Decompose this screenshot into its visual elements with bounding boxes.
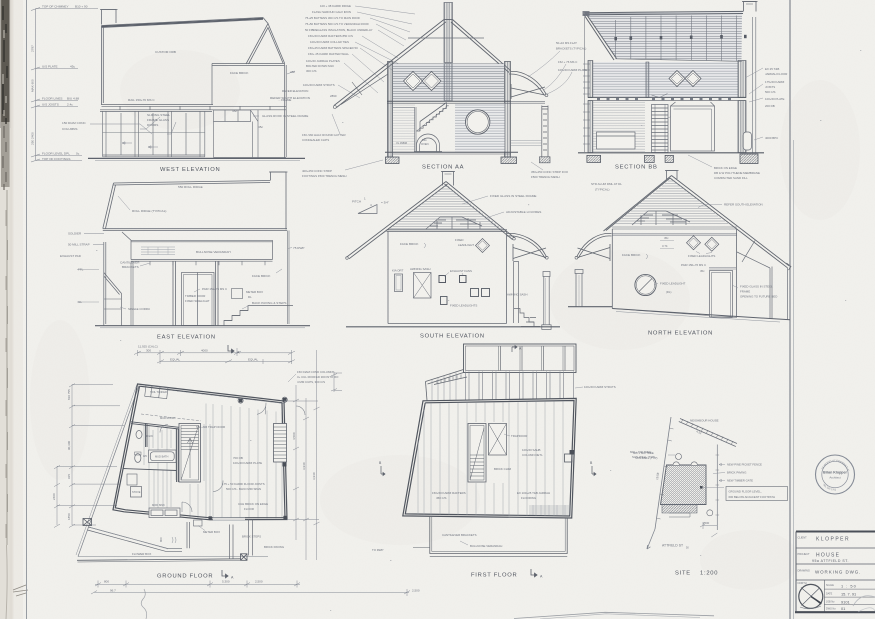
svg-text:CANTILEVER: CANTILEVER (120, 261, 140, 265)
svg-text:HOUSE: HOUSE (816, 553, 840, 559)
svg-text:45c: 45c (258, 125, 263, 129)
svg-text:TOP OF CHIMNEY: TOP OF CHIMNEY (42, 5, 69, 9)
svg-text:3+ CUL ROOFED 300 INTO RO: 3+ CUL ROOFED 300 INTO RO (297, 375, 339, 379)
svg-text:PAIR 152+76 MS C: PAIR 152+76 MS C (202, 287, 227, 291)
svg-text:REFER ELEVATION: REFER ELEVATION (282, 89, 308, 93)
svg-text:VL 39BM: VL 39BM (396, 141, 408, 145)
svg-text:75 RWP: 75 RWP (293, 246, 304, 250)
svg-text:175+50 KARRI: 175+50 KARRI (765, 80, 785, 84)
svg-text:CUH BRICK ON EDGE: CUH BRICK ON EDGE (238, 502, 268, 506)
svg-text:B10 + 90: B10 + 90 (75, 5, 88, 9)
svg-text:175 + 50 KARRI FLOOR JOISTS: 175 + 50 KARRI FLOOR JOISTS (222, 482, 265, 486)
svg-text:300 C/S: 300 C/S (306, 69, 317, 73)
svg-text:BACK PAVING & STEPS: BACK PAVING & STEPS (252, 301, 286, 305)
svg-text:LEADLIGHT: LEADLIGHT (458, 243, 474, 247)
svg-text:FRAME: FRAME (740, 290, 750, 294)
svg-text:MUD ROOM: MUD ROOM (160, 416, 175, 420)
svg-text:0c: 0c (76, 152, 80, 156)
svg-text:DRAWING: DRAWING (798, 569, 810, 573)
svg-text:FIXED: FIXED (455, 238, 464, 242)
svg-text:100+50 KARRI STRUTS: 100+50 KARRI STRUTS (303, 83, 335, 87)
svg-text:ADJUSTABLE LOUVRES: ADJUSTABLE LOUVRES (506, 210, 541, 214)
svg-text:FIXED LEADLIGHTS: FIXED LEADLIGHTS (450, 304, 477, 308)
svg-text:DB & W POLYTHENE MEMBRANE: DB & W POLYTHENE MEMBRANE (714, 171, 760, 175)
svg-text:REFER SOUTH ELEVATION: REFER SOUTH ELEVATION (724, 203, 763, 207)
svg-text:SOIL TANKER: SOIL TANKER (150, 390, 167, 394)
svg-text:FLOOR LEVEL DPL: FLOOR LEVEL DPL (42, 152, 70, 156)
svg-text:CONCEALED CLIPS: CONCEALED CLIPS (302, 138, 329, 142)
svg-text:01: 01 (841, 606, 845, 611)
svg-text:EXHAUST FANS: EXHAUST FANS (450, 269, 472, 273)
svg-text:U/S PLATE: U/S PLATE (42, 65, 58, 69)
svg-text:PAIR 150+76 MS C: PAIR 150+76 MS C (681, 263, 706, 267)
svg-text:FOOTINGS F500 TRENCH MESH: FOOTINGS F500 TRENCH MESH (302, 174, 346, 178)
svg-text:1:200: 1:200 (700, 571, 718, 577)
svg-text:600 BELOW ADJACENT FOOTPATH: 600 BELOW ADJACENT FOOTPATH (729, 495, 775, 499)
svg-text:500 C/S: 500 C/S (765, 90, 776, 94)
svg-text:JARRAH FLOOR: JARRAH FLOOR (765, 72, 787, 76)
svg-text:FIXED SIDELIGHT: FIXED SIDELIGHT (185, 299, 210, 303)
svg-text:SECTION BB: SECTION BB (615, 165, 658, 171)
svg-text:STD ALUM DML AT DL: STD ALUM DML AT DL (591, 182, 622, 186)
svg-text:BRICK ON EDGE: BRICK ON EDGE (714, 166, 737, 170)
svg-text:EQUAL: EQUAL (170, 357, 181, 361)
svg-text:SCALE: SCALE (826, 584, 834, 587)
svg-text:BULLNOSE VERANDAH: BULLNOSE VERANDAH (196, 250, 231, 254)
svg-text:4 MM CUPS, 300 C/S: 4 MM CUPS, 300 C/S (297, 380, 325, 384)
svg-text:800: 800 (159, 537, 163, 542)
svg-text:90,300: 90,300 (67, 440, 71, 450)
svg-text:200 DB: 200 DB (765, 104, 775, 108)
svg-text:150 DIAM COND COLUMNS: 150 DIAM COND COLUMNS (297, 370, 334, 374)
svg-text:95a ATTFIELD ST.: 95a ATTFIELD ST. (812, 559, 849, 563)
svg-text:METER BOX: METER BOX (203, 530, 220, 534)
svg-text:FIXED GLASS IN STEEL: FIXED GLASS IN STEEL (740, 285, 773, 289)
svg-text:DATE: DATE (826, 593, 833, 596)
svg-text:100+50 SAHB: 100+50 SAHB (522, 448, 540, 452)
svg-text:FLASH SHROUD GALV IRON: FLASH SHROUD GALV IRON (312, 10, 351, 14)
svg-text:CLIENT: CLIENT (798, 536, 808, 540)
svg-text:5,300: 5,300 (222, 580, 230, 584)
svg-text:EAST ELEVATION: EAST ELEVATION (157, 335, 216, 341)
svg-text:STOVE: STOVE (132, 491, 141, 494)
svg-text:COMPACTED SAND FILL: COMPACTED SAND FILL (714, 176, 748, 180)
svg-text:BRICK PAVING: BRICK PAVING (264, 545, 285, 549)
svg-text:1 : 50: 1 : 50 (841, 584, 857, 589)
svg-text:ROLL RIDGE (TYPICAL): ROLL RIDGE (TYPICAL) (132, 209, 166, 213)
svg-text:TRAPDOOR: TRAPDOOR (511, 434, 527, 438)
svg-text:BRACKETS: BRACKETS (122, 265, 139, 269)
svg-text:RAIL 150+76 MS C: RAIL 150+76 MS C (128, 98, 155, 102)
svg-text:BIG: BIG (422, 138, 427, 142)
svg-text:EX 25 T&B: EX 25 T&B (765, 67, 779, 71)
svg-text:FACE BRICK: FACE BRICK (400, 242, 419, 246)
svg-text:700 OB: 700 OB (233, 456, 243, 460)
svg-text:= 3/4": = 3/4" (381, 201, 389, 205)
svg-text:800: 800 (104, 580, 109, 584)
svg-text:45c: 45c (664, 236, 669, 240)
svg-text:SOUTH ELEVATION: SOUTH ELEVATION (420, 334, 485, 340)
svg-text:AWNING SASH: AWNING SASH (410, 267, 430, 271)
svg-text:SITE: SITE (675, 571, 691, 577)
svg-text:COLUMNS: COLUMNS (62, 127, 77, 131)
svg-text:SECTION AA: SECTION AA (422, 165, 464, 171)
svg-text:METER BOX: METER BOX (246, 290, 263, 294)
svg-text:FACE BRICK: FACE BRICK (252, 274, 271, 278)
svg-text:PROJECT: PROJECT (798, 552, 811, 556)
svg-text:KIA ORT: KIA ORT (392, 269, 404, 273)
svg-text:EX 100+25 T&B JARRAH: EX 100+25 T&B JARRAH (517, 491, 550, 495)
svg-text:96.7: 96.7 (110, 588, 116, 592)
svg-text:1850: 1850 (67, 513, 71, 520)
svg-text:JOB No: JOB No (826, 600, 835, 603)
svg-text:FIRST FLOOR: FIRST FLOOR (471, 573, 517, 579)
svg-text:150 DIAM CONC: 150 DIAM CONC (62, 121, 86, 125)
svg-text:600 + 600 TREE: 600 + 600 TREE (633, 451, 654, 455)
svg-text:3.74: 3.74 (662, 244, 668, 248)
svg-text:150+25 KARRI BATTENS SPACED: 150+25 KARRI BATTENS SPACED 50 (308, 46, 358, 50)
svg-text:SLIDING STEEL: SLIDING STEEL (147, 113, 170, 117)
svg-text:KLOPPER: KLOPPER (816, 537, 850, 543)
svg-text:GROUND FLOOR: GROUND FLOOR (157, 574, 213, 580)
svg-text:75+25 BATTENS 300 C/S TO MA: 75+25 BATTENS 300 C/S TO MAIN ROOF (305, 16, 360, 20)
svg-text:SUN-WELL (TYP): SUN-WELL (TYP) (635, 456, 657, 460)
svg-text:DWG No: DWG No (826, 608, 836, 611)
svg-text:NORTH ELEVATION: NORTH ELEVATION (648, 331, 713, 337)
svg-text:152 + 76 MS C: 152 + 76 MS C (558, 60, 577, 64)
svg-text:EXHAUST PAD: EXHAUST PAD (60, 254, 82, 258)
svg-text:CANTILEVER BRACKETS: CANTILEVER BRACKETS (442, 533, 477, 537)
svg-text:TOP OF FOOTINGS: TOP OF FOOTINGS (42, 157, 70, 161)
svg-text:JOISTS: JOISTS (765, 85, 775, 89)
svg-text:4000: 4000 (201, 349, 208, 353)
svg-text:FLOOR LINES: FLOOR LINES (42, 97, 62, 101)
svg-text:45c: 45c (232, 109, 237, 113)
svg-text:OVEN: OVEN (421, 142, 429, 146)
svg-text:GLASS ROOF IN STEEL FRAME: GLASS ROOF IN STEEL FRAME (262, 114, 308, 118)
svg-text:FLOORING: FLOORING (521, 496, 537, 500)
svg-text:150 /160 HALF ROUND GUTTER: 150 /160 HALF ROUND GUTTER (302, 133, 346, 137)
svg-text:75+50 BATTENS 500 C/S TO VE: 75+50 BATTENS 500 C/S TO VERANDAH ROOF (305, 22, 369, 26)
svg-text:150+50 KARRI RAFTERS 850 C/: 150+50 KARRI RAFTERS 850 C/S (308, 34, 353, 38)
svg-text:810 755: 810 755 (67, 389, 71, 400)
svg-text:(DL): (DL) (666, 290, 672, 294)
svg-text:BRICK CHIM: BRICK CHIM (494, 467, 512, 471)
svg-text:100+50 KARRI STRUTS: 100+50 KARRI STRUTS (584, 385, 616, 389)
svg-text:50 FIBREGLASS INSULATION, B: 50 FIBREGLASS INSULATION, BLACK UNDERLAY (305, 28, 373, 32)
svg-text:Architect: Architect (829, 476, 840, 480)
svg-text:BRICK PAVING: BRICK PAVING (727, 471, 746, 475)
svg-text:GROUND FLOOR LEVEL,: GROUND FLOOR LEVEL, (729, 490, 762, 494)
svg-text:NEW TIMBER GATE: NEW TIMBER GATE (727, 479, 753, 483)
svg-text:2,500: 2,500 (255, 580, 263, 584)
svg-text:BASIN: BASIN (145, 435, 153, 438)
svg-text:100+50 KARRI PLATE: 100+50 KARRI PLATE (233, 461, 262, 465)
svg-text:2,500: 2,500 (412, 588, 420, 592)
svg-text:B/U 4.88: B/U 4.88 (67, 97, 79, 101)
svg-text:300: 300 (146, 349, 151, 353)
svg-text:NORTH: NORTH (798, 581, 807, 585)
svg-text:2890: 2890 (330, 94, 337, 98)
svg-text:150+ 25 KARRI RAFTER WALL: 150+ 25 KARRI RAFTER WALL (308, 52, 349, 56)
svg-text:9101: 9101 (841, 599, 850, 604)
svg-text:WC: WC (143, 455, 147, 458)
svg-text:DL: DL (248, 295, 252, 299)
svg-text:150+50 KARRI RAFTERS: 150+50 KARRI RAFTERS (432, 491, 466, 495)
svg-text:... FRAME: ... FRAME (278, 98, 291, 102)
svg-text:COLUMN DETL: COLUMN DETL (522, 453, 543, 457)
svg-text:100+50 PLATE: 100+50 PLATE (765, 97, 785, 101)
svg-text:PITCH: PITCH (352, 200, 361, 204)
svg-text:MUD BATH: MUD BATH (155, 455, 168, 459)
svg-text:250 2400: 250 2400 (31, 132, 35, 145)
svg-text:BRICK STEPS: BRICK STEPS (242, 535, 261, 539)
svg-text:BRACKETS (TYPICAL): BRACKETS (TYPICAL) (556, 47, 586, 51)
svg-text:FLOWER BOX: FLOWER BOX (132, 552, 151, 556)
svg-text:400+250 CONC STRIP: 400+250 CONC STRIP (302, 169, 332, 173)
svg-text:FACE BRICK: FACE BRICK (230, 71, 249, 75)
svg-text:2500: 2500 (703, 521, 710, 525)
svg-text:2400: 2400 (52, 493, 56, 500)
svg-text:915: 915 (67, 474, 71, 479)
svg-text:45c: 45c (70, 65, 75, 69)
svg-text:Brian Klopper: Brian Klopper (823, 471, 847, 475)
svg-text:BULLNOSE VERANDAH: BULLNOSE VERANDAH (470, 544, 502, 548)
svg-text:FIXED LEADLIGHT: FIXED LEADLIGHT (660, 282, 686, 286)
svg-text:MOD SINK: MOD SINK (152, 503, 165, 507)
svg-text:50 MILL STRAP: 50 MILL STRAP (68, 243, 90, 247)
svg-text:TO RWP: TO RWP (372, 548, 384, 552)
svg-text:TAIL AIR TRAP DOOR: TAIL AIR TRAP DOOR (196, 425, 225, 429)
svg-text:MAX 600: MAX 600 (31, 79, 35, 92)
svg-text:4,500: 4,500 (292, 432, 296, 440)
svg-text:U/S JOISTS: U/S JOISTS (42, 103, 59, 107)
svg-text:100 + 38 KARRI RIDGE: 100 + 38 KARRI RIDGE (320, 4, 351, 8)
svg-text:FACE BRICK: FACE BRICK (622, 253, 641, 257)
svg-text:50+10 MS FLAT: 50+10 MS FLAT (556, 41, 577, 45)
svg-text:4000 BPC: 4000 BPC (765, 136, 778, 140)
svg-text:15. 7. 91: 15. 7. 91 (841, 592, 856, 597)
svg-text:100+50 JARRAH PLATES: 100+50 JARRAH PLATES (306, 59, 340, 63)
svg-text:NEW PINE PICKET FENCE: NEW PINE PICKET FENCE (727, 463, 762, 467)
svg-text:(TYPICAL): (TYPICAL) (595, 188, 610, 192)
svg-text:NEIGHBOUR HOUSE: NEIGHBOUR HOUSE (690, 419, 719, 423)
svg-text:500 C/S - BLKD MID SPAN: 500 C/S - BLKD MID SPAN (226, 487, 261, 491)
svg-text:350+250 CONC STRIP FOO: 350+250 CONC STRIP FOO (531, 170, 569, 174)
svg-text:FIXED LEADLIGHTS: FIXED LEADLIGHTS (688, 254, 715, 258)
svg-text:SOLDIER: SOLDIER (68, 232, 82, 236)
svg-text:SINGLE CORRU: SINGLE CORRU (128, 307, 150, 311)
svg-text:AWNING SASH: AWNING SASH (507, 293, 527, 297)
svg-text:3,940: 3,940 (302, 462, 306, 470)
svg-text:FLOOR: FLOOR (244, 507, 254, 511)
svg-text:450 C/S: 450 C/S (436, 496, 447, 500)
svg-text:WORKING DWG.: WORKING DWG. (815, 570, 861, 575)
svg-text:100+50 KARRI COLLAR TIES: 100+50 KARRI COLLAR TIES (310, 40, 349, 44)
svg-text:EQUAL: EQUAL (248, 357, 259, 361)
svg-text:550 ROLL RIDGE: 550 ROLL RIDGE (178, 185, 203, 189)
svg-text:F500 TRENCH MESH: F500 TRENCH MESH (531, 175, 560, 179)
svg-text:ATTFIELD ST: ATTFIELD ST (662, 544, 683, 548)
svg-text:2787: 2787 (31, 45, 35, 52)
svg-text:BOLTED DOWN M10: BOLTED DOWN M10 (306, 64, 334, 68)
svg-text:3,940: 3,940 (312, 472, 316, 480)
svg-text:CUSTOM ORB: CUSTOM ORB (155, 50, 176, 54)
svg-text:45c: 45c (700, 269, 705, 273)
svg-text:TIMBER DOOR: TIMBER DOOR (185, 294, 205, 298)
svg-text:2.4c: 2.4c (67, 103, 73, 107)
svg-text:100+50 KARRI PLATE: 100+50 KARRI PLATE (558, 68, 587, 72)
svg-text:WEST ELEVATION: WEST ELEVATION (160, 167, 220, 173)
svg-text:FIXED GLASS IN STEEL FRAME: FIXED GLASS IN STEEL FRAME (490, 194, 536, 198)
